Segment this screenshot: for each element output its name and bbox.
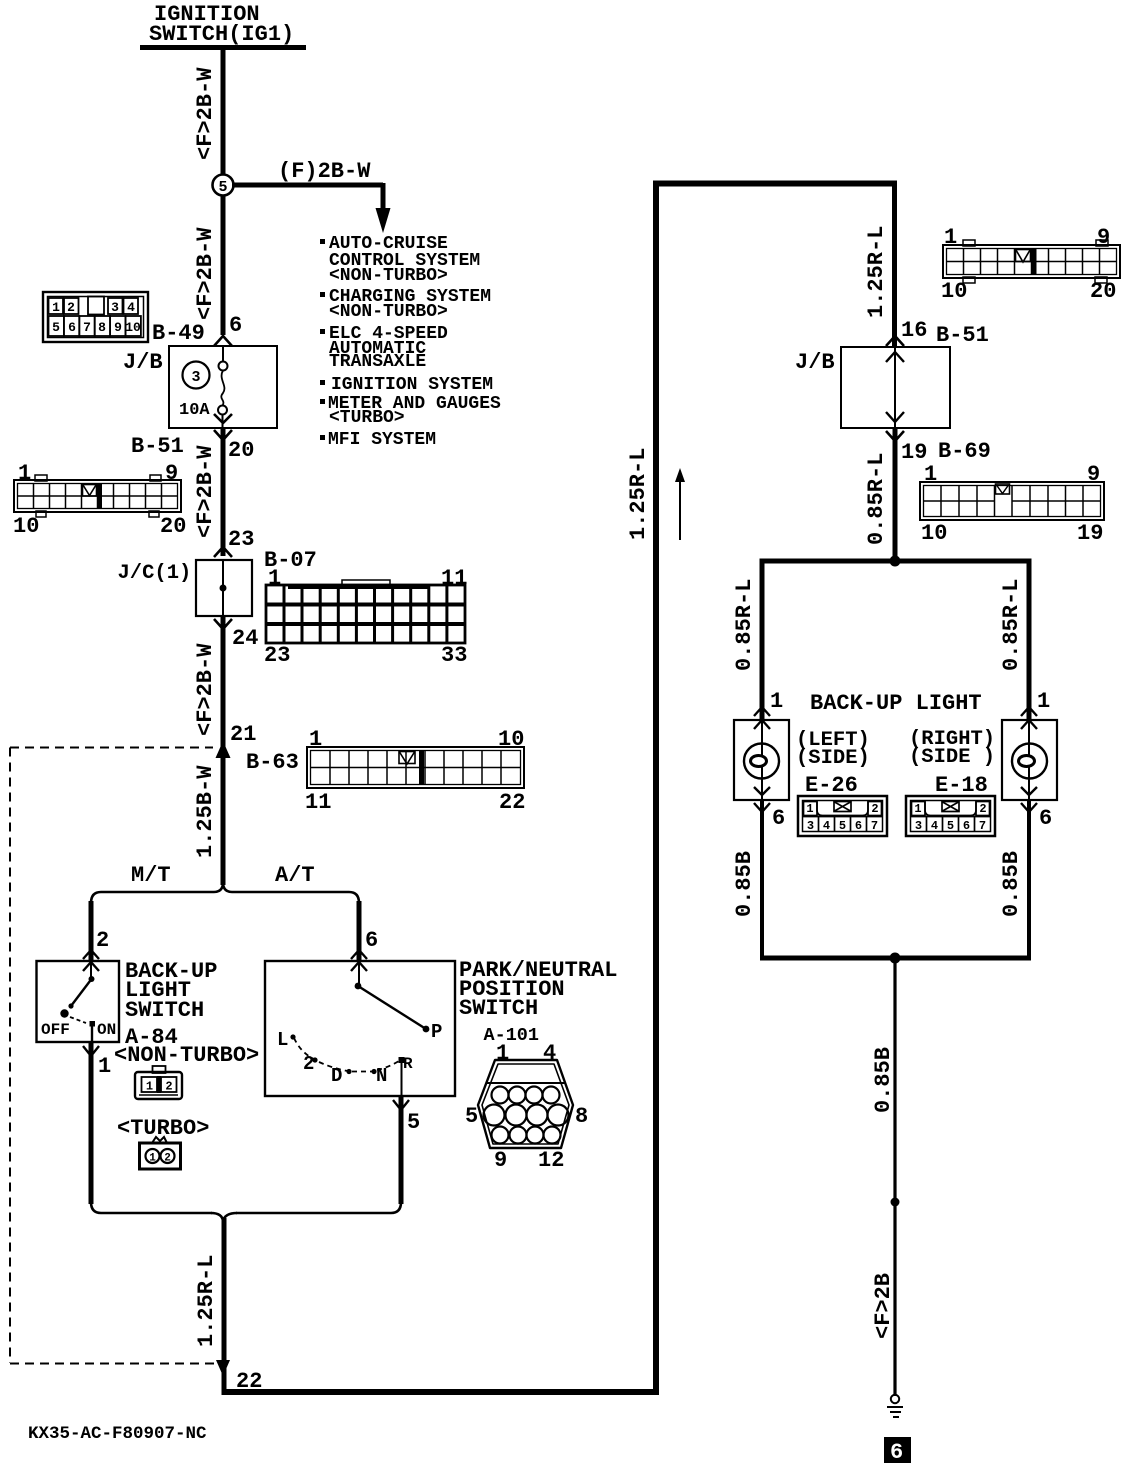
svg-text:<NON-TURBO>: <NON-TURBO> — [329, 302, 448, 322]
svg-text:1: 1 — [806, 802, 813, 816]
svg-text:6: 6 — [855, 819, 862, 833]
svg-text:12: 12 — [538, 1148, 564, 1173]
svg-text:33: 33 — [441, 643, 467, 668]
svg-text:<NON-TURBO>: <NON-TURBO> — [114, 1043, 259, 1068]
svg-text:21: 21 — [230, 722, 256, 747]
svg-text:4: 4 — [823, 819, 830, 833]
svg-text:D: D — [331, 1065, 342, 1087]
svg-text:MFI SYSTEM: MFI SYSTEM — [328, 430, 436, 450]
svg-text:1.25R-L: 1.25R-L — [864, 226, 889, 318]
svg-text:(SIDE): (SIDE) — [796, 747, 870, 770]
svg-text:20: 20 — [228, 438, 254, 463]
svg-text:B-69: B-69 — [938, 439, 991, 464]
svg-text:22: 22 — [499, 790, 525, 815]
svg-text:1: 1 — [146, 1080, 153, 1094]
svg-text:B-51: B-51 — [131, 434, 184, 459]
svg-text:L: L — [277, 1029, 288, 1051]
svg-text:5: 5 — [839, 819, 846, 833]
svg-text:0.85B: 0.85B — [871, 1047, 896, 1113]
svg-text:3: 3 — [111, 300, 119, 315]
svg-text:OFF: OFF — [41, 1021, 70, 1039]
svg-text:SWITCH: SWITCH — [125, 998, 204, 1023]
svg-text:5: 5 — [52, 320, 60, 335]
svg-text:M/T: M/T — [131, 863, 171, 888]
svg-text:2: 2 — [165, 1080, 172, 1094]
svg-text:7: 7 — [871, 819, 878, 833]
svg-text:1: 1 — [52, 300, 60, 315]
svg-text:19: 19 — [1077, 521, 1103, 546]
svg-text:9: 9 — [1087, 462, 1100, 487]
svg-text:5: 5 — [947, 819, 954, 833]
svg-text:IGNITION SYSTEM: IGNITION SYSTEM — [331, 375, 493, 395]
svg-text:6: 6 — [68, 320, 76, 335]
svg-text:2: 2 — [164, 1153, 171, 1165]
svg-text:BACK-UP LIGHT: BACK-UP LIGHT — [810, 691, 982, 716]
svg-text:1.25R-L: 1.25R-L — [194, 1255, 219, 1347]
svg-text:10: 10 — [941, 279, 967, 304]
svg-text:<TURBO>: <TURBO> — [329, 408, 405, 428]
svg-text:1: 1 — [914, 802, 921, 816]
svg-text:4: 4 — [931, 819, 938, 833]
svg-text:<F>2B: <F>2B — [871, 1273, 896, 1339]
svg-text:20: 20 — [1090, 279, 1116, 304]
svg-text:2: 2 — [979, 802, 986, 816]
svg-text:7: 7 — [979, 819, 986, 833]
svg-text:1.25B-W: 1.25B-W — [193, 765, 218, 858]
svg-text:0.85R-L: 0.85R-L — [999, 579, 1024, 671]
svg-text:6: 6 — [772, 806, 785, 831]
svg-text:1: 1 — [496, 1041, 509, 1066]
svg-text:0.85B: 0.85B — [732, 851, 757, 917]
svg-text:6: 6 — [365, 928, 378, 953]
svg-text:ON: ON — [97, 1021, 116, 1039]
svg-text:9: 9 — [165, 461, 178, 486]
svg-text:1: 1 — [98, 1054, 111, 1079]
svg-text:1: 1 — [944, 225, 957, 250]
svg-text:11: 11 — [441, 566, 467, 591]
svg-text:1: 1 — [18, 461, 31, 486]
svg-text:2: 2 — [303, 1053, 314, 1075]
svg-text:1: 1 — [1037, 689, 1050, 714]
svg-text:3: 3 — [915, 819, 922, 833]
svg-text:J/B: J/B — [795, 350, 835, 375]
svg-text:9: 9 — [114, 320, 122, 335]
svg-text:3: 3 — [807, 819, 814, 833]
svg-text:N: N — [376, 1065, 387, 1087]
svg-text:6: 6 — [963, 819, 970, 833]
svg-text:<F>2B-W: <F>2B-W — [193, 227, 218, 320]
svg-text:KX35-AC-F80907-NC: KX35-AC-F80907-NC — [28, 1424, 207, 1444]
svg-text:10A: 10A — [179, 401, 210, 420]
svg-text:<F>2B-W: <F>2B-W — [193, 445, 218, 538]
svg-text:2: 2 — [96, 928, 109, 953]
svg-text:24: 24 — [232, 626, 258, 651]
svg-text:E-26: E-26 — [805, 773, 858, 798]
svg-text:9: 9 — [494, 1148, 507, 1173]
svg-text:A/T: A/T — [275, 863, 315, 888]
svg-text:2: 2 — [871, 802, 878, 816]
svg-text:9: 9 — [1097, 225, 1110, 250]
svg-text:10: 10 — [498, 727, 524, 752]
svg-text:10: 10 — [125, 320, 141, 335]
svg-text:10: 10 — [921, 521, 947, 546]
svg-text:3: 3 — [191, 369, 200, 386]
svg-text:B-63: B-63 — [246, 750, 299, 775]
svg-text:6: 6 — [229, 313, 242, 338]
svg-text:0.85R-L: 0.85R-L — [864, 453, 889, 545]
svg-text:4: 4 — [543, 1041, 556, 1066]
svg-text:1: 1 — [268, 566, 281, 591]
svg-text:20: 20 — [160, 514, 186, 539]
svg-text:4: 4 — [127, 300, 135, 315]
svg-text:5: 5 — [218, 179, 227, 196]
svg-text:8: 8 — [98, 320, 106, 335]
svg-text:16: 16 — [901, 318, 927, 343]
svg-text:B-49: B-49 — [152, 321, 205, 346]
svg-text:0.85B: 0.85B — [999, 851, 1024, 917]
svg-text:TRANSAXLE: TRANSAXLE — [329, 352, 426, 372]
svg-text:<NON-TURBO>: <NON-TURBO> — [329, 266, 448, 286]
svg-text:1: 1 — [149, 1153, 156, 1165]
svg-text:E-18: E-18 — [935, 773, 988, 798]
svg-text:0.85R-L: 0.85R-L — [732, 579, 757, 671]
svg-text:5: 5 — [465, 1104, 478, 1129]
svg-text:6: 6 — [890, 1440, 903, 1465]
svg-text:1: 1 — [770, 689, 783, 714]
svg-text:1.25R-L: 1.25R-L — [626, 448, 651, 540]
svg-text:J/C(1): J/C(1) — [118, 562, 192, 585]
svg-text:R: R — [403, 1055, 413, 1073]
svg-text:SWITCH(IG1): SWITCH(IG1) — [149, 22, 294, 47]
svg-text:<F>2B-W: <F>2B-W — [193, 67, 218, 160]
svg-text:SWITCH: SWITCH — [459, 996, 538, 1021]
svg-text:5: 5 — [407, 1110, 420, 1135]
svg-text:P: P — [431, 1021, 442, 1043]
svg-text:J/B: J/B — [123, 350, 163, 375]
svg-text:2: 2 — [67, 300, 75, 315]
svg-text:A-101: A-101 — [484, 1025, 540, 1046]
svg-text:7: 7 — [83, 320, 91, 335]
svg-text:6: 6 — [1039, 806, 1052, 831]
svg-text:8: 8 — [575, 1104, 588, 1129]
svg-text:23: 23 — [264, 643, 290, 668]
svg-text:(SIDE ): (SIDE ) — [909, 746, 995, 769]
svg-text:1: 1 — [309, 727, 322, 752]
svg-text:11: 11 — [305, 790, 331, 815]
svg-text:23: 23 — [228, 527, 254, 552]
svg-text:10: 10 — [13, 514, 39, 539]
svg-text:<F>2B-W: <F>2B-W — [193, 643, 218, 736]
svg-text:(F)2B-W: (F)2B-W — [278, 159, 371, 184]
svg-text:B-51: B-51 — [936, 323, 989, 348]
svg-text:1: 1 — [924, 462, 937, 487]
